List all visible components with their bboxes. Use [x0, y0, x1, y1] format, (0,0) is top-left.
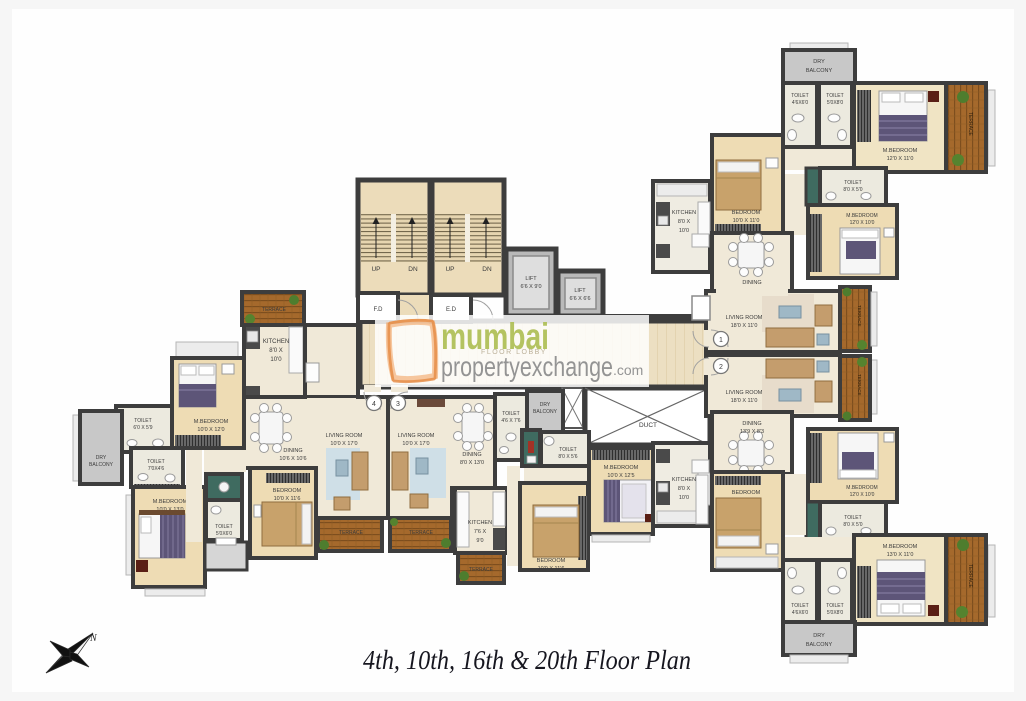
svg-text:F.D: F.D: [374, 307, 384, 313]
svg-text:DRY: DRY: [540, 402, 551, 408]
svg-text:TERRACE: TERRACE: [967, 564, 973, 589]
svg-text:10'0 X 17'0: 10'0 X 17'0: [330, 441, 357, 447]
svg-text:DUCT: DUCT: [639, 422, 657, 429]
svg-text:8'0 X 5'6: 8'0 X 5'6: [558, 454, 577, 460]
svg-text:BEDROOM: BEDROOM: [732, 210, 761, 216]
svg-text:TOILET: TOILET: [791, 93, 808, 99]
svg-text:6'6 X 9'0: 6'6 X 9'0: [520, 284, 541, 290]
svg-text:4'6X6'0: 4'6X6'0: [792, 100, 809, 106]
svg-text:TOILET: TOILET: [134, 418, 151, 424]
svg-text:TERRACE: TERRACE: [857, 374, 862, 396]
svg-text:4: 4: [372, 401, 376, 408]
svg-text:18'0 X 11'0: 18'0 X 11'0: [731, 323, 758, 329]
svg-text:M.BEDROOM: M.BEDROOM: [883, 148, 918, 154]
svg-text:M.BEDROOM: M.BEDROOM: [153, 499, 188, 505]
svg-text:10'0 X 12'5: 10'0 X 12'5: [607, 473, 634, 479]
svg-text:M.BEDROOM: M.BEDROOM: [604, 465, 639, 471]
svg-text:TOILET: TOILET: [215, 524, 232, 530]
svg-text:LIFT: LIFT: [574, 288, 586, 294]
svg-text:E.D: E.D: [446, 307, 457, 313]
svg-text:DINING: DINING: [462, 452, 481, 458]
svg-text:M.BEDROOM: M.BEDROOM: [846, 213, 877, 219]
svg-text:8'0 X 5'0: 8'0 X 5'0: [843, 187, 862, 193]
svg-text:TOILET: TOILET: [844, 180, 861, 186]
svg-text:9'0: 9'0: [476, 538, 483, 544]
svg-text:BEDROOM: BEDROOM: [732, 490, 761, 496]
svg-text:18'0 X 11'0: 18'0 X 11'0: [731, 398, 758, 404]
svg-text:8'0 X: 8'0 X: [678, 219, 691, 225]
svg-text:7'0X4'6: 7'0X4'6: [148, 466, 165, 472]
svg-text:M.BEDROOM: M.BEDROOM: [883, 544, 918, 550]
svg-text:DINING: DINING: [742, 280, 761, 286]
svg-text:DN: DN: [482, 266, 492, 273]
svg-text:12'0 X 11'0: 12'0 X 11'0: [887, 156, 914, 162]
svg-text:LIVING ROOM: LIVING ROOM: [398, 433, 435, 439]
svg-text:DRY: DRY: [96, 455, 107, 461]
svg-text:BALCONY: BALCONY: [533, 409, 558, 415]
svg-text:BEDROOM: BEDROOM: [273, 488, 302, 494]
svg-text:TOILET: TOILET: [826, 93, 843, 99]
svg-text:DRY: DRY: [813, 633, 825, 639]
svg-text:M.BEDROOM: M.BEDROOM: [846, 485, 877, 491]
svg-text:3: 3: [396, 401, 400, 408]
svg-text:M.BEDROOM: M.BEDROOM: [194, 419, 229, 425]
svg-text:10'0 X 11'6: 10'0 X 11'6: [274, 496, 301, 502]
svg-text:TERRACE: TERRACE: [409, 530, 434, 536]
svg-text:LIFT: LIFT: [525, 276, 537, 282]
svg-text:13'9 X 8'3: 13'9 X 8'3: [740, 429, 764, 435]
svg-text:10'0: 10'0: [679, 495, 689, 501]
svg-text:TOILET: TOILET: [502, 411, 519, 417]
svg-text:5'0X8'0: 5'0X8'0: [827, 100, 844, 106]
svg-text:10'0 X 11'6: 10'0 X 11'6: [538, 566, 565, 572]
svg-text:8'0 X: 8'0 X: [678, 486, 691, 492]
svg-text:10'0 X 17'0: 10'0 X 17'0: [402, 441, 429, 447]
svg-text:KITCHEN: KITCHEN: [672, 210, 696, 216]
svg-text:LIVING ROOM: LIVING ROOM: [726, 315, 763, 321]
svg-text:TOILET: TOILET: [147, 459, 164, 465]
svg-text:2: 2: [719, 364, 723, 371]
svg-text:propertyexchange: propertyexchange: [441, 351, 613, 382]
svg-text:5'0X8'0: 5'0X8'0: [827, 610, 844, 616]
svg-text:8'0 X: 8'0 X: [269, 348, 283, 354]
svg-text:DN: DN: [408, 266, 418, 273]
svg-text:10'0 X 12'0: 10'0 X 12'0: [197, 427, 224, 433]
svg-text:8'0 X 13'0: 8'0 X 13'0: [460, 460, 484, 466]
svg-text:4th, 10th, 16th & 20th Floor P: 4th, 10th, 16th & 20th Floor Plan: [363, 645, 691, 675]
svg-text:KITCHEN: KITCHEN: [468, 520, 492, 526]
svg-text:13'0 X 11'0: 13'0 X 11'0: [887, 552, 914, 558]
svg-text:TOILET: TOILET: [826, 603, 843, 609]
svg-text:UP: UP: [445, 266, 454, 273]
svg-text:6'6 X 6'6: 6'6 X 6'6: [569, 296, 590, 302]
svg-text:TOILET: TOILET: [559, 447, 576, 453]
svg-text:10'0 X 11'0: 10'0 X 11'0: [733, 218, 760, 224]
svg-text:BALCONY: BALCONY: [89, 462, 114, 468]
svg-text:7'6 X: 7'6 X: [474, 529, 487, 535]
svg-text:4'6 X 7'6: 4'6 X 7'6: [501, 418, 520, 424]
svg-text:BEDROOM: BEDROOM: [537, 558, 566, 564]
svg-text:BALCONY: BALCONY: [806, 642, 833, 648]
svg-text:1: 1: [719, 337, 723, 344]
svg-text:BALCONY: BALCONY: [806, 68, 833, 74]
svg-text:12'0 X 10'0: 12'0 X 10'0: [850, 220, 875, 226]
svg-text:.com: .com: [613, 362, 643, 378]
svg-text:TERRACE: TERRACE: [339, 530, 364, 536]
svg-text:5'0X6'0: 5'0X6'0: [216, 531, 233, 537]
svg-text:TERRACE: TERRACE: [262, 307, 287, 313]
svg-text:UP: UP: [371, 266, 380, 273]
svg-text:LIVING ROOM: LIVING ROOM: [726, 390, 763, 396]
svg-text:TERRACE: TERRACE: [469, 567, 494, 573]
svg-text:KITCHEN: KITCHEN: [263, 339, 289, 345]
svg-text:TERRACE: TERRACE: [857, 305, 862, 327]
svg-text:8'0 X 5'0: 8'0 X 5'0: [843, 522, 862, 528]
svg-text:KITCHEN: KITCHEN: [672, 477, 696, 483]
svg-text:10'0: 10'0: [270, 357, 282, 363]
svg-text:6'0 X 5'9: 6'0 X 5'9: [133, 425, 152, 431]
svg-text:12'0 X 10'0: 12'0 X 10'0: [850, 492, 875, 498]
svg-text:TERRACE: TERRACE: [967, 112, 973, 137]
svg-text:N: N: [89, 633, 98, 644]
svg-text:DINING: DINING: [742, 421, 761, 427]
svg-text:DRY: DRY: [813, 59, 825, 65]
svg-text:4'6X6'0: 4'6X6'0: [792, 610, 809, 616]
svg-text:LIVING ROOM: LIVING ROOM: [326, 433, 363, 439]
svg-text:TOILET: TOILET: [844, 515, 861, 521]
svg-text:10'0: 10'0: [679, 228, 689, 234]
svg-text:TOILET: TOILET: [791, 603, 808, 609]
svg-text:DINING: DINING: [283, 448, 302, 454]
svg-text:10'6 X 10'6: 10'6 X 10'6: [279, 456, 306, 462]
